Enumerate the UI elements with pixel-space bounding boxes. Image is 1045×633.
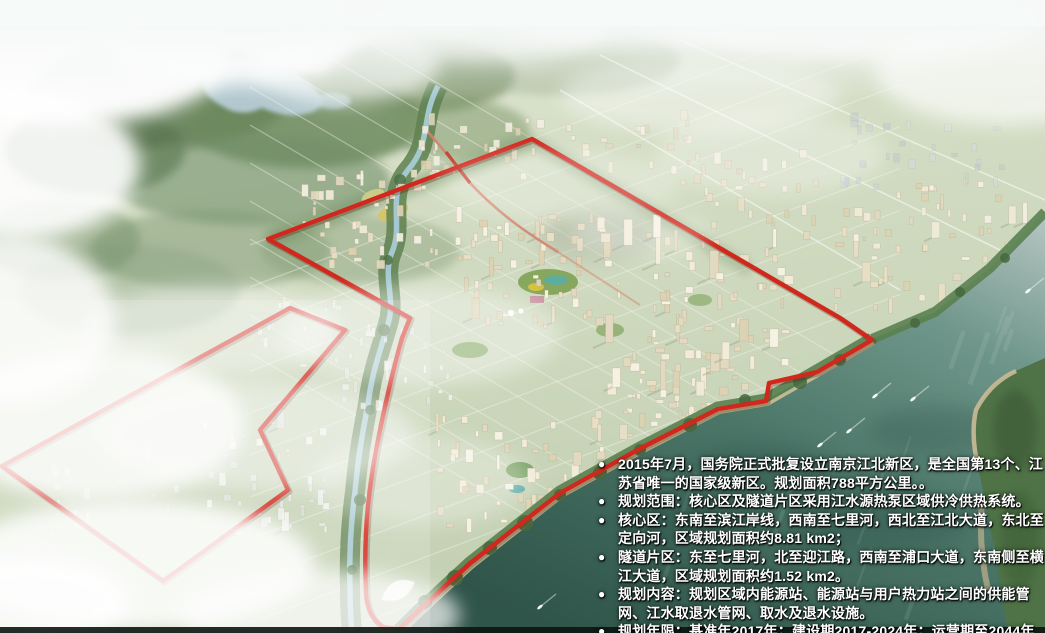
annotation-item: ●规划年限：基准年2017年；建设期2017-2024年；运营期至2044年	[597, 622, 1044, 633]
annotation-text: 规划内容：规划区域内能源站、能源站与用户热力站之间的供能管网、江水取退水管网、取…	[618, 586, 1030, 621]
annotation-item: ●规划范围：核心区及隧道片区采用江水源热泵区域供冷供热系统。	[597, 492, 1044, 511]
aerial-planning-rendering: ●2015年7月，国务院正式批复设立南京江北新区，是全国第13个、江苏省唯一的国…	[0, 0, 1045, 633]
annotation-item: ●核心区：东南至滨江岸线，西南至七里河，西北至江北大道，东北至定向河，区域规划面…	[597, 511, 1044, 548]
bullet-icon: ●	[598, 585, 605, 604]
annotation-item: ●规划内容：规划区域内能源站、能源站与用户热力站之间的供能管网、江水取退水管网、…	[597, 585, 1044, 622]
bullet-icon: ●	[598, 455, 605, 474]
annotation-item: ●隧道片区：东至七里河，北至迎江路，西南至浦口大道，东南侧至横江大道，区域规划面…	[597, 548, 1044, 585]
bullet-icon: ●	[598, 548, 605, 567]
annotation-text: 2015年7月，国务院正式批复设立南京江北新区，是全国第13个、江苏省唯一的国家…	[618, 456, 1043, 491]
bullet-icon: ●	[598, 622, 605, 633]
bullet-icon: ●	[598, 511, 605, 530]
annotation-item: ●2015年7月，国务院正式批复设立南京江北新区，是全国第13个、江苏省唯一的国…	[597, 455, 1044, 492]
pink-roof-building	[530, 296, 544, 303]
annotation-panel: ●2015年7月，国务院正式批复设立南京江北新区，是全国第13个、江苏省唯一的国…	[597, 455, 1044, 633]
annotation-text: 核心区：东南至滨江岸线，西南至七里河，西北至江北大道，东北至定向河，区域规划面积…	[618, 512, 1044, 547]
annotation-text: 规划范围：核心区及隧道片区采用江水源热泵区域供冷供热系统。	[618, 493, 1030, 509]
annotation-list: ●2015年7月，国务院正式批复设立南京江北新区，是全国第13个、江苏省唯一的国…	[597, 455, 1044, 633]
bullet-icon: ●	[598, 492, 605, 511]
annotation-text: 隧道片区：东至七里河，北至迎江路，西南至浦口大道，东南侧至横江大道，区域规划面积…	[618, 549, 1044, 584]
annotation-text: 规划年限：基准年2017年；建设期2017-2024年；运营期至2044年	[618, 623, 1035, 633]
